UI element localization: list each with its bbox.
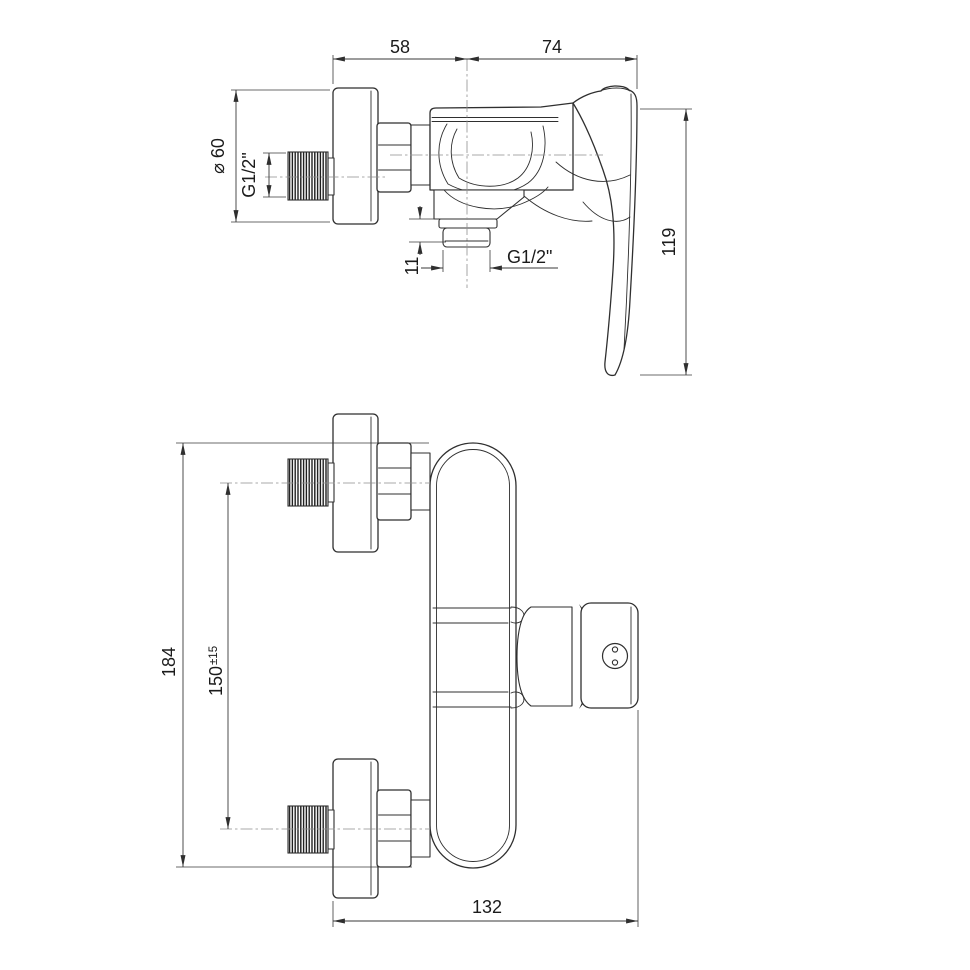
dim-g12-inlet: G1/2": [239, 152, 286, 197]
dim-label-g12-outlet: G1/2": [507, 247, 552, 267]
dim-150: 150 ±15: [206, 483, 228, 829]
front-bottom-thread: [288, 806, 328, 853]
dim-119: 119: [640, 109, 692, 375]
front-bottom-collar: [328, 810, 334, 849]
dim-label-g12-inlet: G1/2": [239, 152, 259, 197]
front-top-collar: [328, 463, 334, 502]
dim-label-58: 58: [390, 37, 410, 57]
front-cartridge-collar: [517, 607, 572, 706]
front-body: [430, 443, 516, 868]
front-indicator-dot-bottom: [612, 660, 617, 665]
dim-label-11: 11: [402, 257, 422, 276]
dim-58-74: 58 74: [333, 37, 637, 89]
front-top-thread: [288, 459, 328, 506]
front-top-neck: [411, 453, 430, 510]
side-inlet-thread: [288, 152, 328, 200]
dim-label-150: 150: [206, 666, 226, 696]
dim-label-74: 74: [542, 37, 562, 57]
dim-label-150-tolerance: ±15: [208, 646, 220, 665]
dim-label-184: 184: [159, 647, 179, 677]
front-bottom-neck: [411, 800, 430, 857]
side-outlet-flange: [439, 219, 497, 228]
front-view-centerlines: [220, 483, 430, 829]
front-top-hex-nut: [377, 443, 411, 520]
side-outlet-stub: [443, 228, 490, 247]
front-view-parts: [288, 414, 638, 898]
faucet-technical-drawing: 58 74 ⌀ 60 G1/2": [0, 0, 970, 970]
dim-label-132: 132: [472, 897, 502, 917]
side-inlet-collar: [328, 158, 334, 195]
side-outlet-block: [434, 190, 524, 219]
side-view-parts: [288, 86, 637, 375]
dim-g12-outlet: G1/2": [421, 247, 558, 272]
dim-label-119: 119: [659, 228, 679, 257]
side-hex-nut: [377, 123, 411, 192]
side-view: 58 74 ⌀ 60 G1/2": [208, 37, 692, 375]
drawing-canvas: 58 74 ⌀ 60 G1/2": [0, 0, 970, 970]
side-handle-lever: [573, 86, 637, 375]
side-underside-curve: [524, 196, 592, 221]
front-indicator-dot-top: [612, 647, 617, 652]
front-view: 184 150 ±15 132: [159, 414, 638, 927]
dim-label-d60: ⌀ 60: [208, 138, 228, 174]
front-bottom-hex-nut: [377, 790, 411, 867]
